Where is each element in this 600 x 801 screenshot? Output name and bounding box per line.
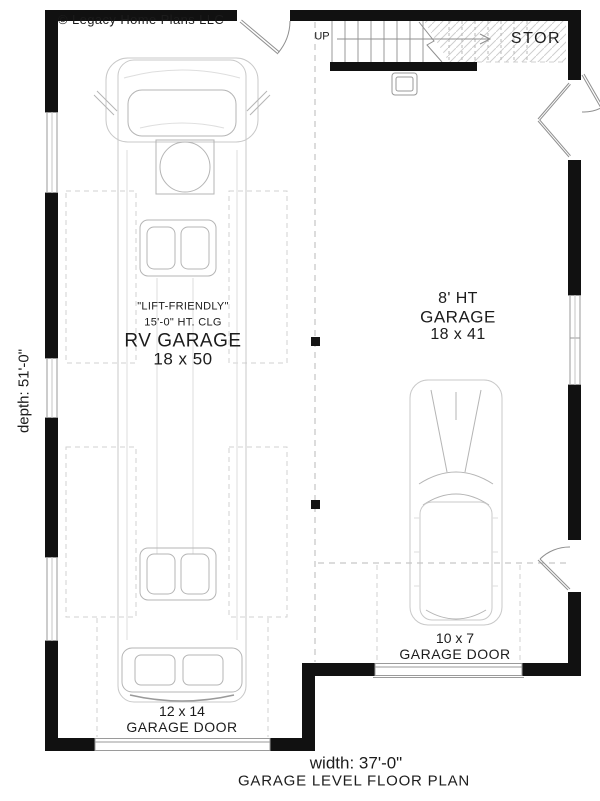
garage-room-size: 18 x 41 [430, 327, 485, 343]
floor-plan-drawing [0, 0, 600, 801]
plan-width-dimension: width: 37'-0" [310, 755, 402, 772]
window [45, 112, 58, 193]
copyright-text: © Legacy Home Plans LLC [58, 13, 224, 26]
floor-plan-page: © Legacy Home Plans LLC UP STOR "LIFT-FR… [0, 0, 600, 801]
rv-garage-note-lift: "LIFT-FRIENDLY" [137, 302, 229, 313]
garage-room-name: GARAGE [420, 309, 496, 326]
rv-garage-door-symbol [95, 739, 270, 751]
walls [45, 10, 581, 751]
rv-top-view [94, 58, 270, 702]
side-door-right [538, 547, 570, 590]
windows [45, 112, 581, 641]
garage-door-symbol [373, 664, 524, 678]
double-door-right [538, 74, 600, 157]
garage-height-note: 8' HT [438, 291, 478, 307]
window [45, 358, 58, 418]
storage-label: STOR [511, 31, 561, 47]
access-box [392, 73, 417, 95]
garage-door-size: 10 x 7 [436, 631, 474, 645]
rv-garage-door-size: 12 x 14 [159, 704, 205, 718]
rv-garage-note-ceiling: 15'-0" HT. CLG [144, 318, 221, 329]
entry-door-top [240, 20, 290, 54]
rv-garage-door-label: GARAGE DOOR [126, 720, 237, 734]
rv-garage-room-size: 18 x 50 [153, 351, 212, 368]
plan-depth-dimension: depth: 51'-0" [17, 349, 32, 433]
rv-garage-room-name: RV GARAGE [124, 332, 241, 351]
car-top-view [410, 380, 502, 625]
door-swings [240, 20, 600, 590]
garage-door-label: GARAGE DOOR [399, 647, 510, 661]
window [568, 295, 581, 385]
plan-title: GARAGE LEVEL FLOOR PLAN [238, 774, 470, 789]
dashed-guides [66, 22, 566, 737]
window [45, 557, 58, 641]
stairs-up-label: UP [314, 32, 329, 43]
